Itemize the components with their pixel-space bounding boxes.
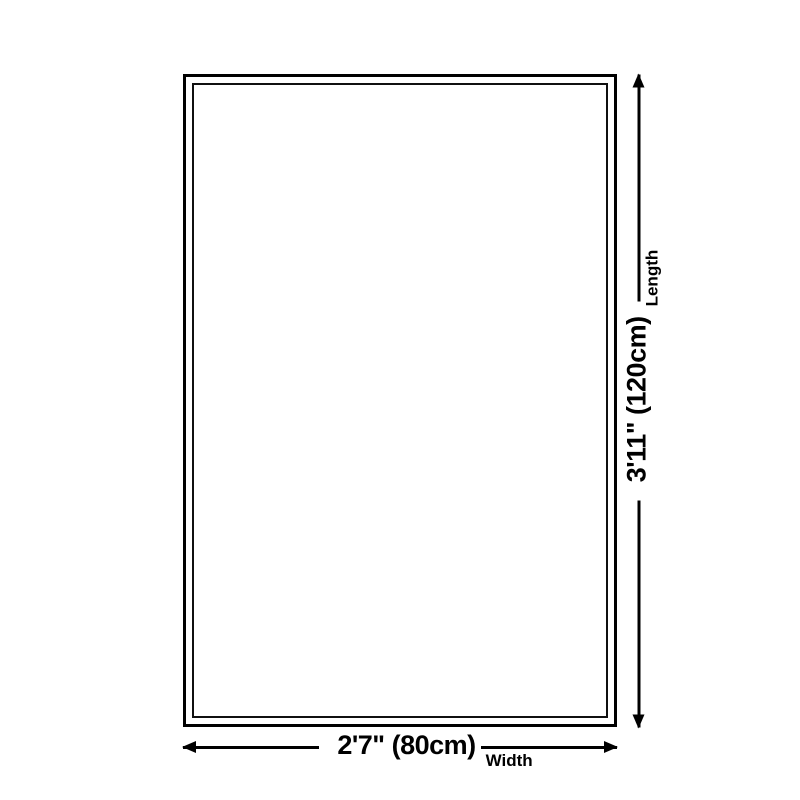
width-arrow-line-left bbox=[183, 746, 319, 749]
width-dimension-label: Width bbox=[486, 752, 533, 769]
width-dimension-value: 2'7" (80cm) bbox=[337, 732, 475, 759]
rug-inner-border bbox=[192, 83, 608, 718]
rug-outline bbox=[183, 74, 617, 727]
length-dimension-label: Length bbox=[643, 250, 660, 307]
arrow-right-icon bbox=[604, 741, 618, 753]
length-arrow-line-top bbox=[637, 75, 640, 302]
length-dimension-value: 3'11" (120cm) bbox=[623, 316, 650, 482]
length-dimension: 3'11" (120cm) Length bbox=[618, 75, 660, 728]
arrow-left-icon bbox=[182, 741, 196, 753]
width-arrow-line-right bbox=[481, 746, 617, 749]
arrow-down-icon bbox=[633, 715, 645, 729]
width-dimension: 2'7" (80cm) Width bbox=[183, 726, 617, 768]
arrow-up-icon bbox=[633, 74, 645, 88]
size-diagram: 3'11" (120cm) Length 2'7" (80cm) Width bbox=[0, 0, 800, 800]
length-arrow-line-bottom bbox=[637, 500, 640, 727]
